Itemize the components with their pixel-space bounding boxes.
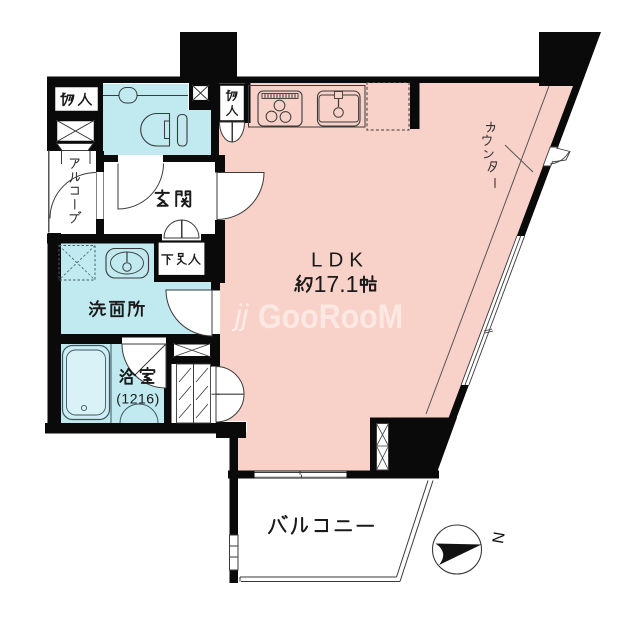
svg-text:GooRooM: GooRooM bbox=[258, 298, 403, 336]
svg-text:LDK: LDK bbox=[311, 249, 369, 272]
svg-text:17.1: 17.1 bbox=[314, 271, 359, 297]
svg-text:(1216): (1216) bbox=[116, 391, 159, 407]
